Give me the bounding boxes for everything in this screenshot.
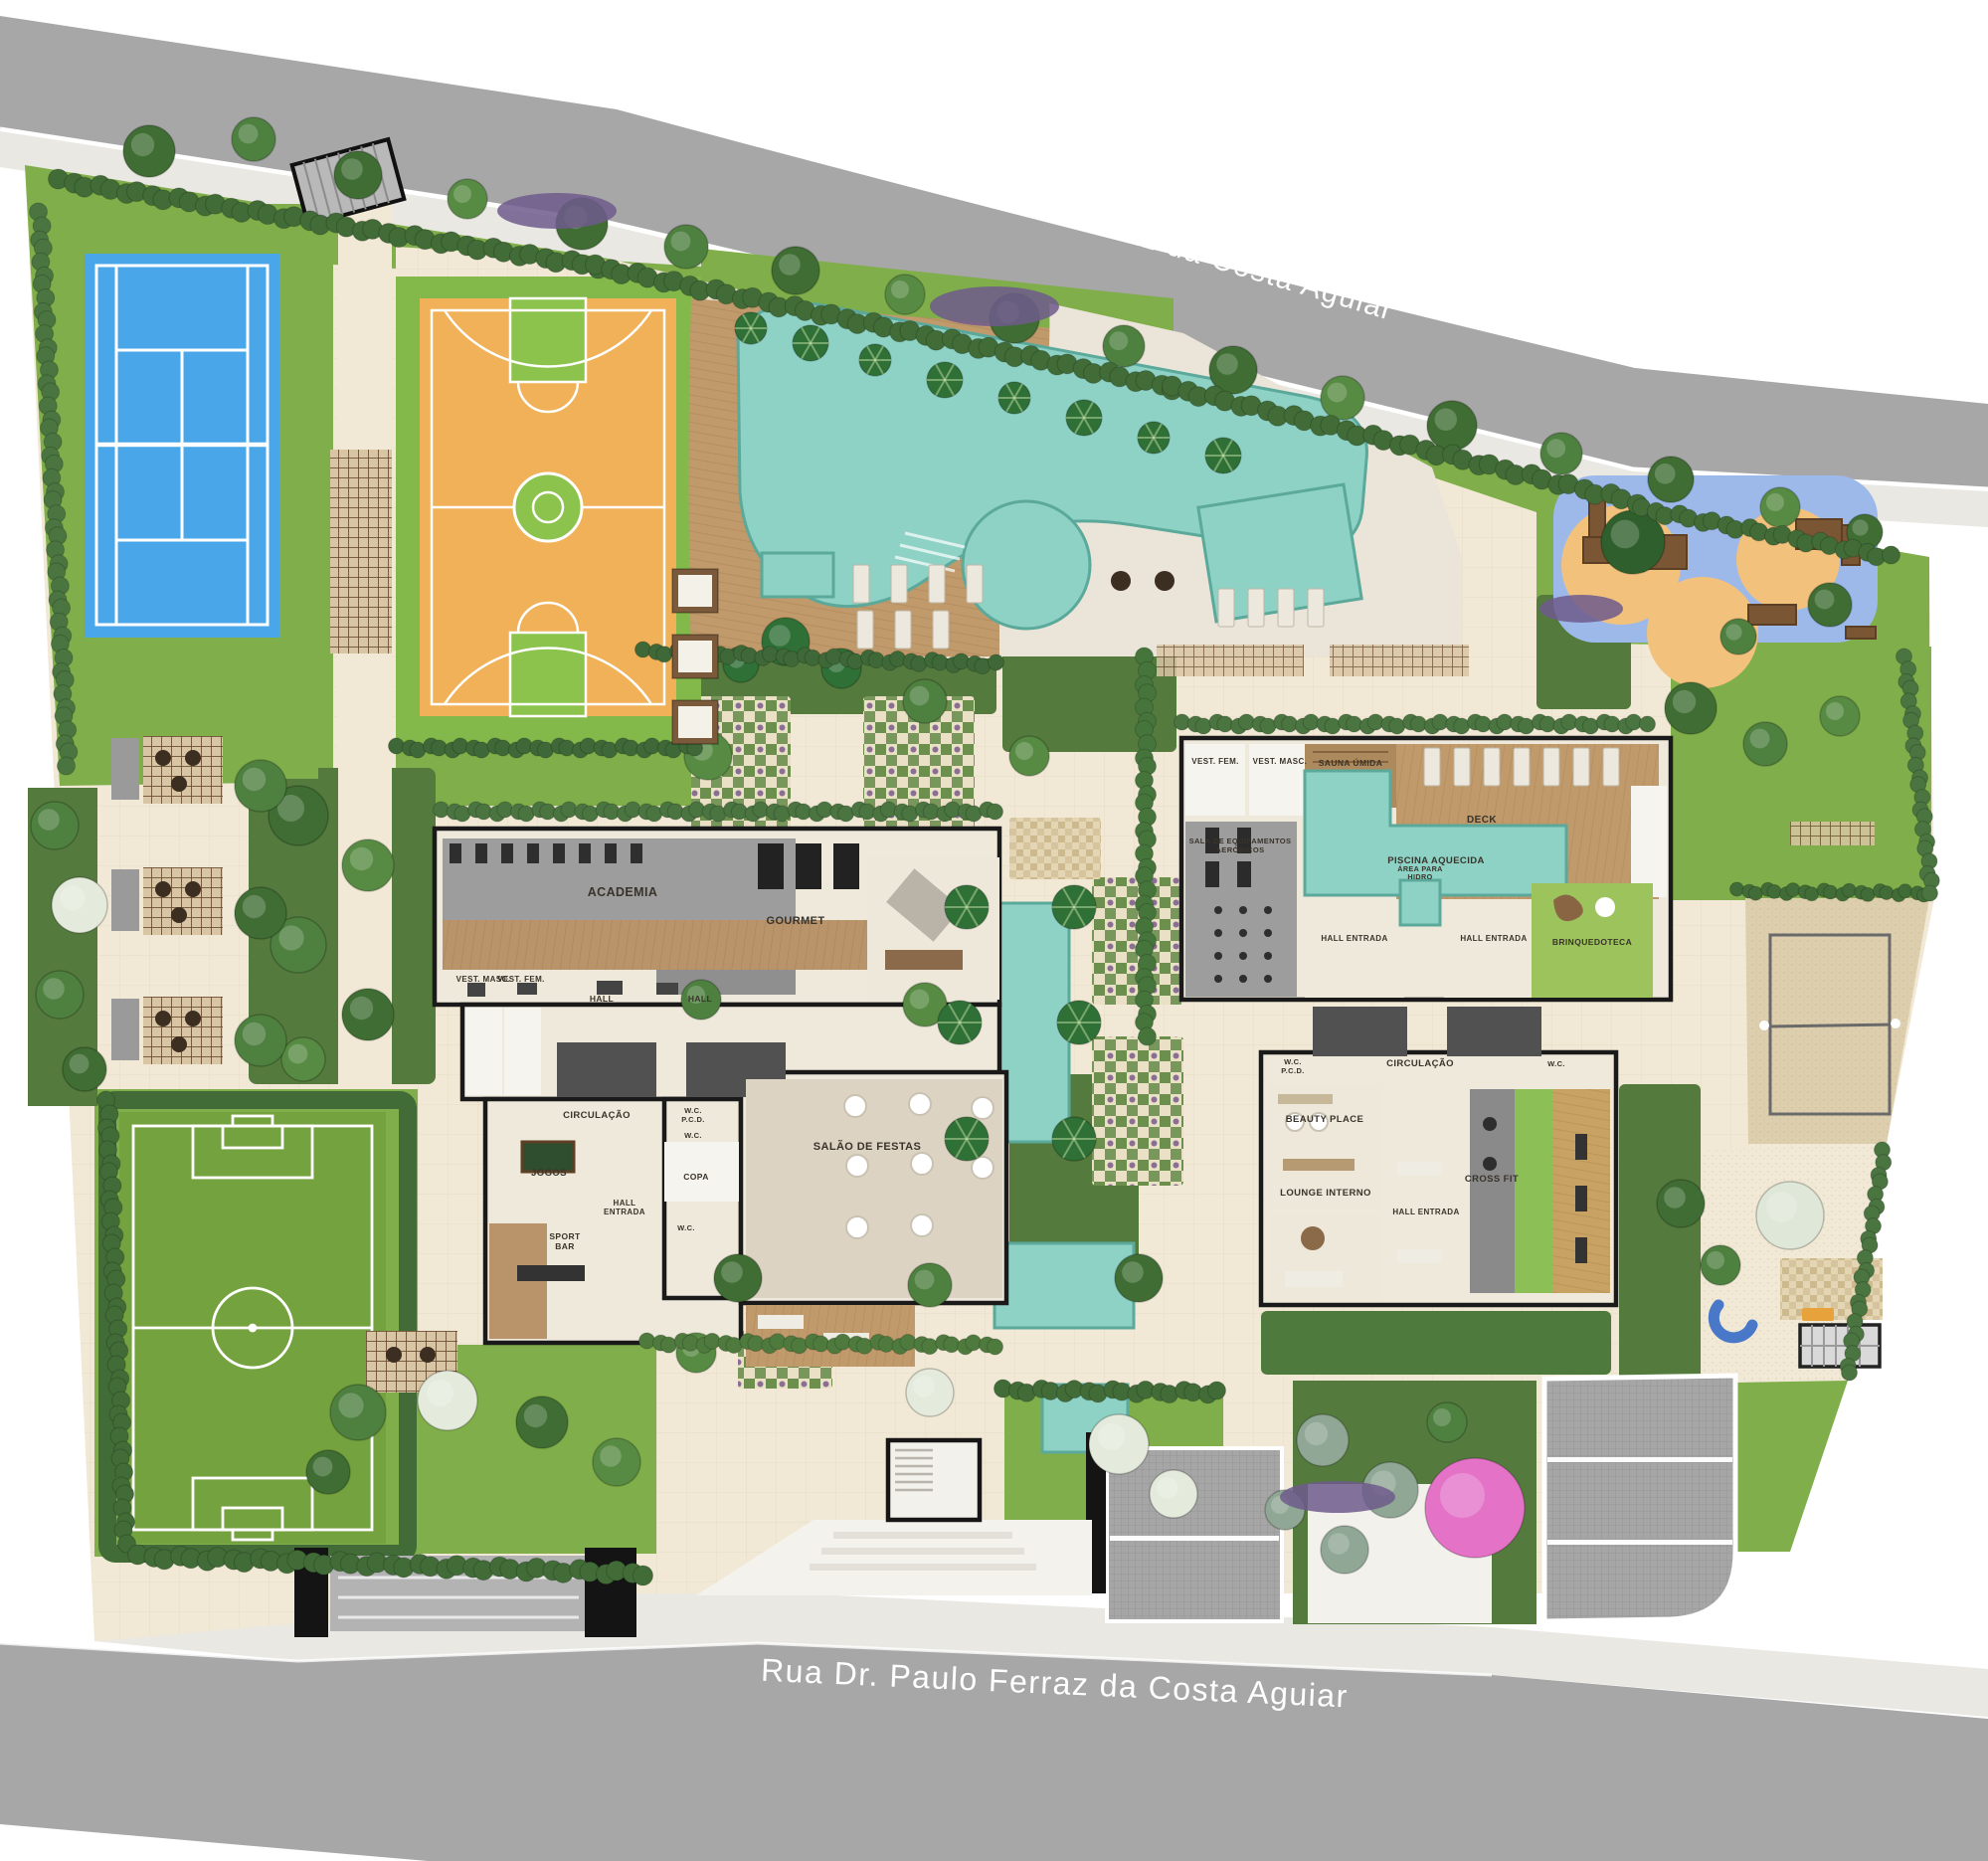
tree — [330, 1385, 386, 1440]
tree — [1743, 722, 1787, 766]
elevator-core — [557, 1042, 656, 1097]
tree — [1321, 1526, 1368, 1574]
sun-lounger — [1424, 748, 1440, 786]
tree — [31, 802, 79, 849]
vest-fem-room-2 — [1185, 744, 1245, 816]
tree — [1427, 1402, 1467, 1442]
tree — [1657, 1180, 1705, 1227]
reflecting-pool-east — [994, 1243, 1134, 1328]
vest-masc-room-2 — [1249, 744, 1311, 816]
purple-shrub-bed — [1280, 1481, 1395, 1513]
palm-tree — [945, 885, 989, 929]
bbq-pergola-2 — [111, 867, 223, 935]
vest-masc-room — [465, 1008, 502, 1095]
soccer-field — [107, 1100, 408, 1554]
lounge-interno-label: LOUNGE INTERNO — [1280, 1188, 1371, 1199]
vine-trellis-2 — [1330, 645, 1469, 676]
party-hall-floor — [746, 1079, 1002, 1298]
pool-cabana — [672, 700, 718, 744]
tree — [235, 1015, 286, 1066]
sun-lounger — [853, 565, 869, 603]
palm-tree — [998, 382, 1030, 414]
area-hidro-pool — [1400, 880, 1440, 925]
play-bench-icon — [1802, 1308, 1834, 1321]
vest-fem-2-label: VEST. FEM. — [1191, 757, 1239, 766]
hall-entrada-room-2 — [1444, 900, 1543, 998]
sun-lounger — [967, 565, 983, 603]
driveway-b-main — [1544, 1376, 1735, 1621]
tennis-court — [60, 204, 318, 779]
jogos-label: JOGOS — [531, 1168, 567, 1179]
white-flowering-tree — [1756, 1182, 1824, 1249]
lounge-table — [1301, 1226, 1325, 1250]
sun-lounger — [1248, 589, 1264, 627]
sun-lounger — [1454, 748, 1470, 786]
sun-lounger — [1573, 748, 1589, 786]
tree — [342, 839, 394, 891]
tree — [1321, 376, 1364, 420]
sport-2-label: BAR — [555, 1241, 575, 1251]
tree — [235, 887, 286, 939]
tree — [1701, 1245, 1740, 1285]
pcd-1-label: P.C.D. — [681, 1115, 705, 1124]
vest-fem-room — [504, 1008, 541, 1095]
palm-tree — [927, 362, 963, 398]
palm-tree — [945, 1117, 989, 1161]
lounge-room — [1271, 1215, 1380, 1301]
pink-flowering-tree — [1425, 1458, 1525, 1558]
bbq-pergola-3 — [111, 997, 223, 1064]
tree — [903, 679, 947, 723]
palm-tree — [1052, 885, 1096, 929]
tree — [334, 151, 382, 199]
wc-1-label: W.C. — [684, 1106, 702, 1115]
elevator-core — [1313, 1007, 1407, 1056]
tree — [772, 247, 819, 294]
wc-3-label: W.C. — [677, 1223, 695, 1232]
pcd-2-label: P.C.D. — [1281, 1066, 1305, 1075]
academia-label: ACADEMIA — [588, 885, 658, 899]
toy-table — [1595, 897, 1615, 917]
hall-entrada-4-label: HALL ENTRADA — [1392, 1208, 1459, 1216]
beauty-place-label: BEAUTY PLACE — [1286, 1114, 1364, 1125]
site-plan-canvas: Rua Dr. Paulo Ferraz da Costa AguiarRua … — [0, 0, 1988, 1861]
tree — [1808, 583, 1852, 627]
tree — [1427, 401, 1477, 451]
hall-entrada-room-1 — [1305, 900, 1404, 998]
tree — [63, 1047, 106, 1091]
hedge-row — [1136, 648, 1157, 1045]
hall-entrada-1b-label: ENTRADA — [604, 1208, 645, 1216]
vine-trellis-1 — [1157, 645, 1304, 676]
bbq-pergola-1 — [111, 736, 223, 804]
wc-4-label: W.C. — [1284, 1057, 1302, 1066]
garden-below-right-building — [1261, 1311, 1611, 1375]
sun-lounger — [891, 565, 907, 603]
white-flowering-tree — [1150, 1470, 1197, 1518]
tree — [123, 125, 175, 177]
sport-1-label: SPORT — [549, 1231, 581, 1241]
tree — [1103, 325, 1145, 367]
beauty-counter — [1278, 1094, 1333, 1104]
vest-fem-1-label: VEST. FEM. — [497, 975, 545, 984]
lawn-right-of-driveway — [1735, 1381, 1848, 1552]
sala-equip-2-label: AERÓBICOS — [1215, 845, 1264, 854]
pergola-walkway — [330, 450, 392, 653]
sun-lounger — [1484, 748, 1500, 786]
bar-counter — [517, 1265, 585, 1281]
bistro-table — [1111, 571, 1131, 591]
salao-festas-label: SALÃO DE FESTAS — [813, 1140, 921, 1153]
palm-tree — [1066, 400, 1102, 436]
exterior-staircase — [1800, 1325, 1880, 1367]
hall-1-label: HALL — [590, 994, 614, 1004]
tree — [1720, 619, 1756, 654]
tree — [281, 1037, 325, 1081]
palm-tree — [793, 325, 828, 361]
vest-masc-2-label: VEST. MASC. — [1253, 757, 1308, 766]
beach-volleyball-court — [1745, 898, 1929, 1144]
sauna-label: SAUNA ÚMIDA — [1319, 757, 1383, 768]
hall-entrada-3-label: HALL ENTRADA — [1460, 934, 1527, 943]
tree — [448, 179, 487, 219]
area-hidro-2-label: HIDRO — [1407, 872, 1432, 881]
white-flowering-tree — [1089, 1414, 1149, 1474]
tree — [664, 225, 708, 269]
hall-entrada-1a-label: HALL — [614, 1199, 636, 1208]
palm-tree — [938, 1001, 982, 1044]
tree — [593, 1438, 640, 1486]
tree — [235, 760, 286, 812]
hall-2-label: HALL — [688, 994, 712, 1004]
tree — [516, 1396, 568, 1448]
gourmet-label: GOURMET — [766, 915, 824, 927]
purple-shrub-bed — [930, 286, 1059, 326]
palm-tree — [1057, 1001, 1101, 1044]
palm-tree — [1205, 438, 1241, 473]
sun-lounger — [1278, 589, 1294, 627]
palm-tree — [859, 344, 891, 376]
lounge-sofa — [1285, 1271, 1343, 1287]
tree — [36, 971, 84, 1019]
cross-fit-label: CROSS FIT — [1465, 1174, 1519, 1185]
tree — [306, 1450, 350, 1494]
tree — [1665, 682, 1717, 734]
palm-tree — [735, 312, 767, 344]
sun-lounger — [1543, 748, 1559, 786]
garden-right-palms — [1619, 1084, 1701, 1383]
purple-shrub-bed — [497, 193, 617, 229]
vine-trellis-3 — [1790, 822, 1875, 845]
elevator-core — [1447, 1007, 1541, 1056]
wc-5-label: W.C. — [1547, 1059, 1565, 1068]
white-flowering-tree — [418, 1371, 477, 1430]
tree — [1820, 696, 1860, 736]
sun-lounger — [933, 611, 949, 649]
tree — [908, 1263, 952, 1307]
wc-rooms-right — [1631, 786, 1667, 897]
wc-2-label: W.C. — [684, 1131, 702, 1140]
tree — [1648, 457, 1694, 502]
tree — [714, 1254, 762, 1302]
circulacao-2-label: CIRCULAÇÃO — [1386, 1058, 1454, 1069]
tree — [342, 989, 394, 1040]
beauty-chairs — [1283, 1159, 1355, 1171]
brinquedoteca-label: BRINQUEDOTECA — [1552, 937, 1632, 947]
tree — [1760, 487, 1800, 527]
copa-label: COPA — [683, 1172, 709, 1182]
terrace-sofa — [758, 1315, 804, 1329]
white-flowering-tree — [52, 877, 107, 933]
sun-lounger — [857, 611, 873, 649]
tree — [1115, 1254, 1163, 1302]
gourmet-dining — [885, 950, 963, 970]
tree — [1297, 1414, 1349, 1466]
tree — [1009, 736, 1049, 776]
tree — [232, 117, 275, 161]
white-flowering-tree — [906, 1369, 954, 1416]
sun-lounger — [1603, 748, 1619, 786]
hall-entrada-2-label: HALL ENTRADA — [1321, 934, 1387, 943]
sun-lounger — [895, 611, 911, 649]
bistro-table — [1155, 571, 1175, 591]
pool-cabana — [672, 635, 718, 678]
palm-tree — [1052, 1117, 1096, 1161]
sala-equip-1-label: SALA DE EQUIPAMENTOS — [1189, 837, 1292, 845]
crossfit-room — [1470, 1089, 1610, 1293]
deck-label: DECK — [1467, 815, 1497, 826]
purple-shrub-bed — [1539, 595, 1623, 623]
tree — [885, 275, 925, 314]
tree — [1540, 433, 1582, 474]
sun-lounger — [1514, 748, 1530, 786]
sun-lounger — [1308, 589, 1324, 627]
basketball-court — [396, 277, 701, 751]
masterplan-page: { "streets": { "top": "Rua Dr. Paulo Fer… — [0, 0, 1988, 1861]
sun-lounger — [929, 565, 945, 603]
reflecting-pool-small — [762, 553, 833, 597]
circulacao-1-label: CIRCULAÇÃO — [563, 1110, 631, 1121]
pool-cabana — [672, 569, 718, 613]
palm-tree — [1138, 422, 1170, 454]
sun-lounger — [1218, 589, 1234, 627]
